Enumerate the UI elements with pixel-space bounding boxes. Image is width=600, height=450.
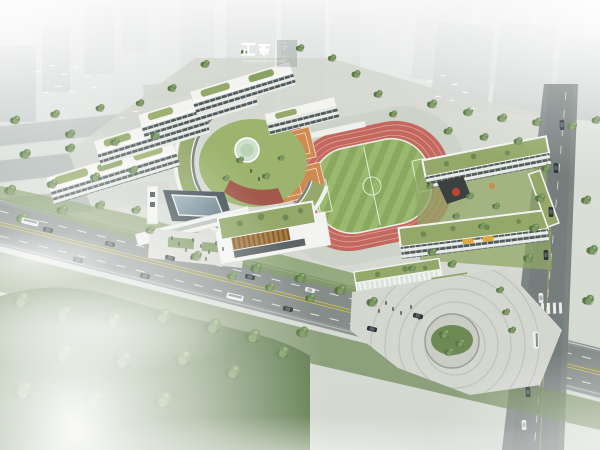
- bus-3: [533, 331, 539, 348]
- rendering-canvas: ZHENGDONG VISION: [0, 0, 600, 450]
- aerial-rendering: ZHENGDONG VISION: [0, 0, 600, 450]
- watermark-subtext: ZHENGDONG VISION: [242, 60, 285, 64]
